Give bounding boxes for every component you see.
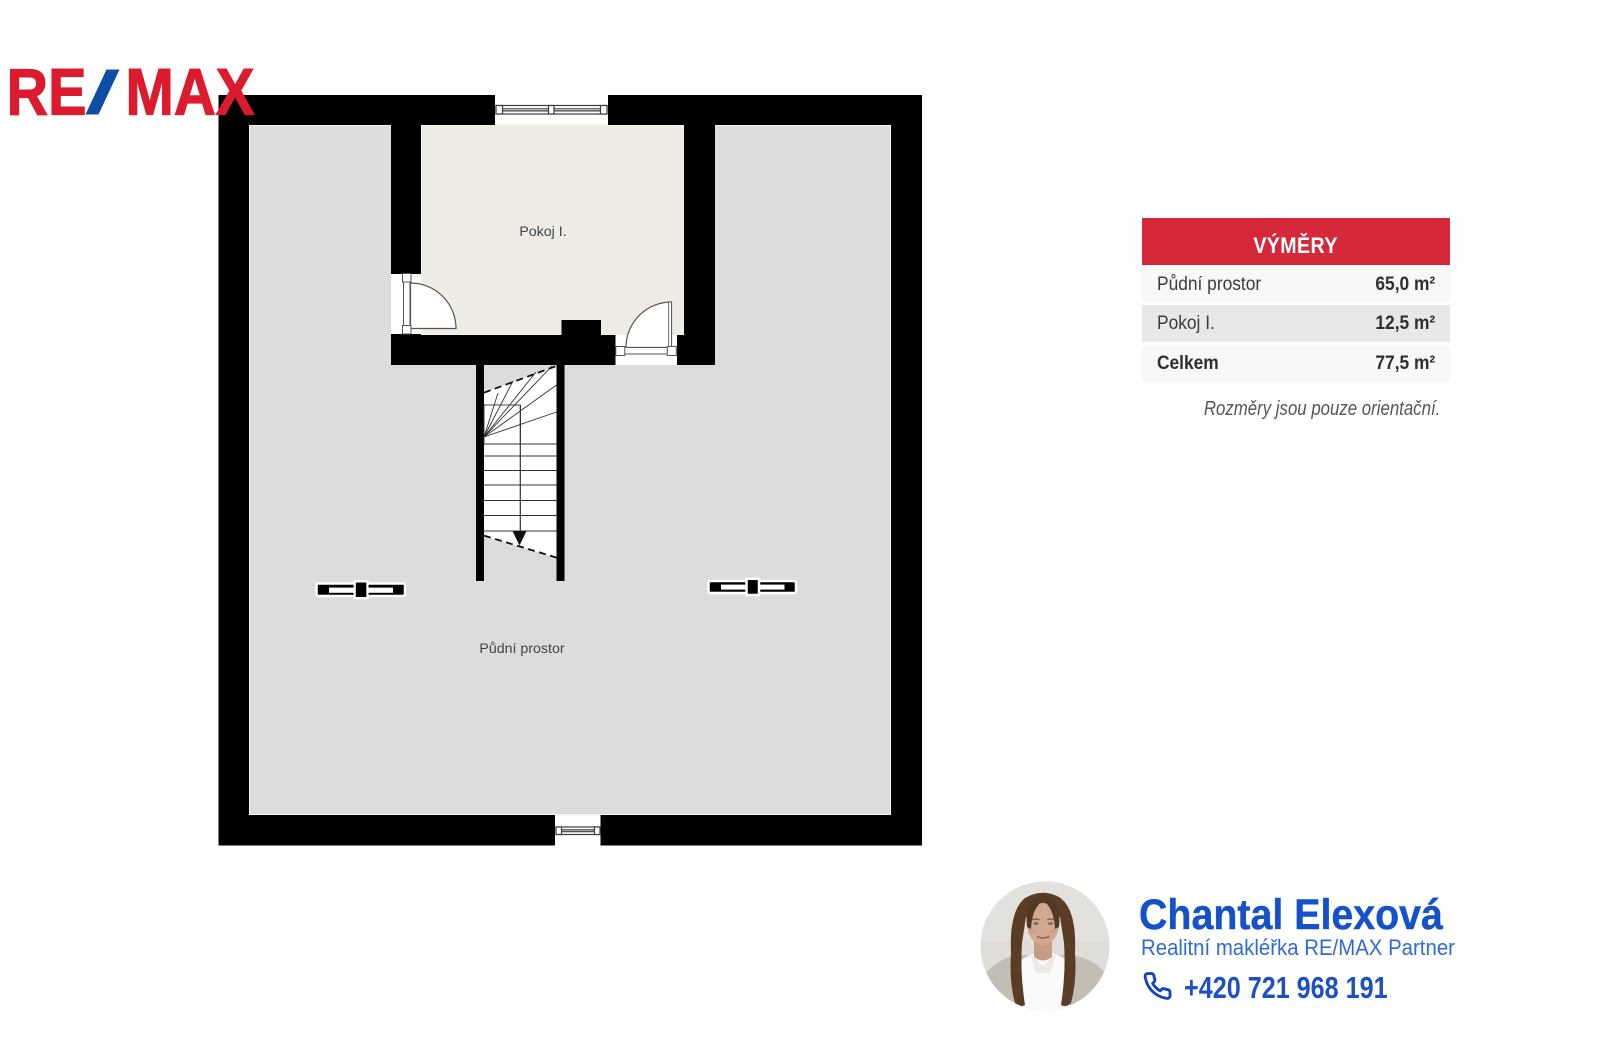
svg-text:RE: RE [10, 67, 87, 119]
svg-text:Půdní prostor: Půdní prostor [479, 641, 564, 657]
svg-text:Pokoj I.: Pokoj I. [519, 224, 566, 240]
svg-text:MAX: MAX [126, 67, 255, 119]
